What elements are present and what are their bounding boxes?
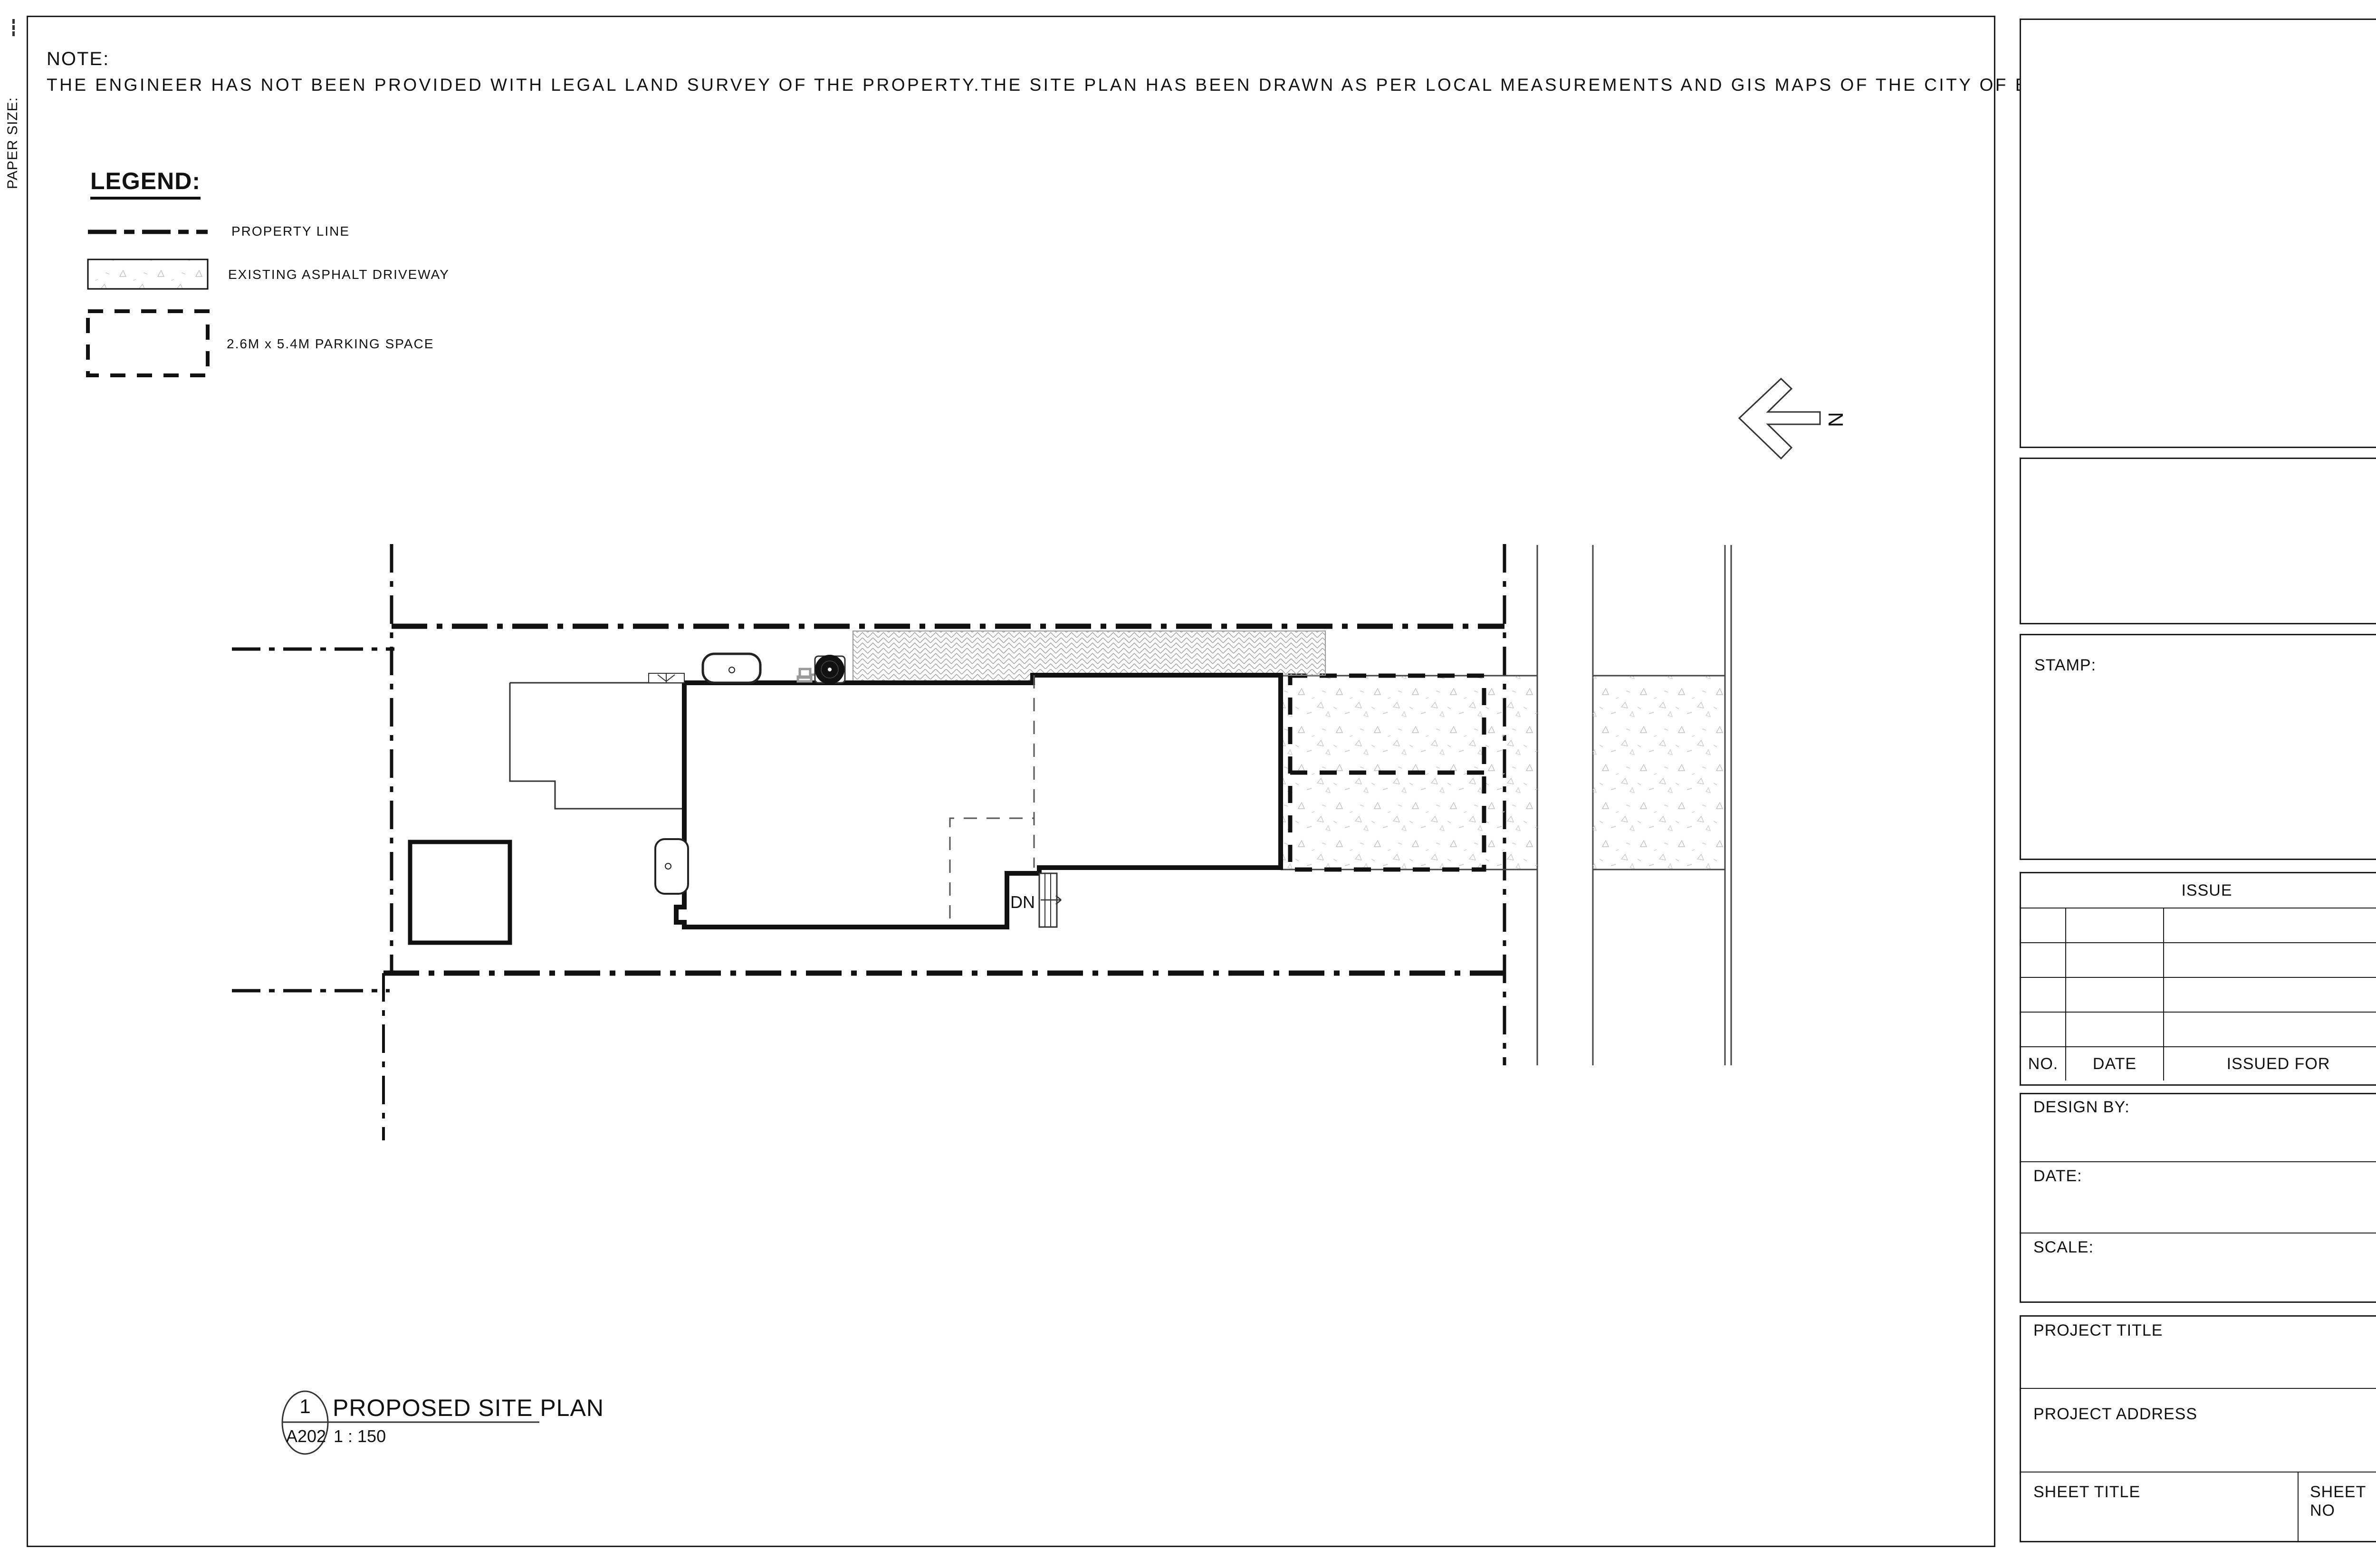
north-arrow-icon — [1739, 379, 1820, 459]
legend-symbol-asphalt-swatch — [88, 259, 208, 289]
project-title-label: PROJECT TITLE — [2021, 1317, 2376, 1340]
window-well-marker — [729, 667, 735, 673]
drawing-sheet: PAPER SIZE: NOTE: THE ENGINEER HAS NOT B… — [0, 0, 2376, 1568]
house-outline — [676, 675, 1281, 927]
project-address-cell: PROJECT ADDRESS — [2021, 1389, 2376, 1472]
porch-outline — [655, 839, 688, 894]
callout-number: 1 — [286, 1395, 324, 1418]
stamp-label: STAMP: — [2034, 656, 2096, 675]
callout-scale: 1 : 150 — [334, 1426, 386, 1446]
issue-label-row: NO. DATE ISSUED FOR — [2021, 1047, 2376, 1080]
sheet-no-cell: SHEET NO — [2299, 1472, 2376, 1541]
issue-table: ISSUE NO. DATE ISSUED FOR — [2020, 872, 2376, 1086]
neighbour-house-outline — [510, 683, 684, 809]
design-by-cell: DESIGN BY: — [2021, 1094, 2376, 1162]
design-info-box: DESIGN BY: DATE: SCALE: — [2020, 1093, 2376, 1303]
issue-header-label: ISSUE — [2181, 881, 2232, 900]
issue-blank-row — [2021, 978, 2376, 1013]
scale-cell: SCALE: — [2021, 1233, 2376, 1301]
sheet-title-row: SHEET TITLE SHEET NO — [2021, 1472, 2376, 1541]
shed-outline — [410, 842, 510, 943]
project-address-label: PROJECT ADDRESS — [2021, 1389, 2376, 1424]
issue-blank-row — [2021, 943, 2376, 978]
stamp-box: STAMP: — [2020, 634, 2376, 860]
callout-title: PROPOSED SITE PLAN — [333, 1394, 604, 1422]
legend-symbol-parking-swatch — [88, 311, 208, 375]
issue-col-issued-for: ISSUED FOR — [2164, 1047, 2376, 1080]
porch-marker — [665, 863, 671, 869]
sheet-title-label: SHEET TITLE — [2021, 1472, 2298, 1501]
issue-table-header: ISSUE — [2021, 873, 2376, 908]
callout-sheet-ref: A202 — [286, 1426, 324, 1446]
issue-col-no: NO. — [2021, 1047, 2066, 1080]
titleblock-second-box — [2020, 458, 2376, 624]
date-label: DATE: — [2021, 1162, 2376, 1186]
project-info-box: PROJECT TITLE PROJECT ADDRESS SHEET TITL… — [2020, 1315, 2376, 1542]
project-title-cell: PROJECT TITLE — [2021, 1317, 2376, 1389]
sheet-title-cell: SHEET TITLE — [2021, 1472, 2299, 1541]
sheet-no-label: SHEET NO — [2299, 1472, 2376, 1520]
sidewalk-crossing-area — [1593, 676, 1725, 870]
issue-blank-row — [2021, 908, 2376, 943]
scale-label: SCALE: — [2021, 1233, 2376, 1257]
design-by-label: DESIGN BY: — [2021, 1094, 2376, 1117]
titleblock-top-box — [2020, 19, 2376, 448]
issue-col-date: DATE — [2066, 1047, 2164, 1080]
north-label: N — [1823, 412, 1847, 427]
date-cell: DATE: — [2021, 1162, 2376, 1233]
ac-unit-fan-hub — [828, 668, 832, 671]
issue-blank-row — [2021, 1013, 2376, 1047]
dn-label: DN — [1010, 892, 1035, 912]
